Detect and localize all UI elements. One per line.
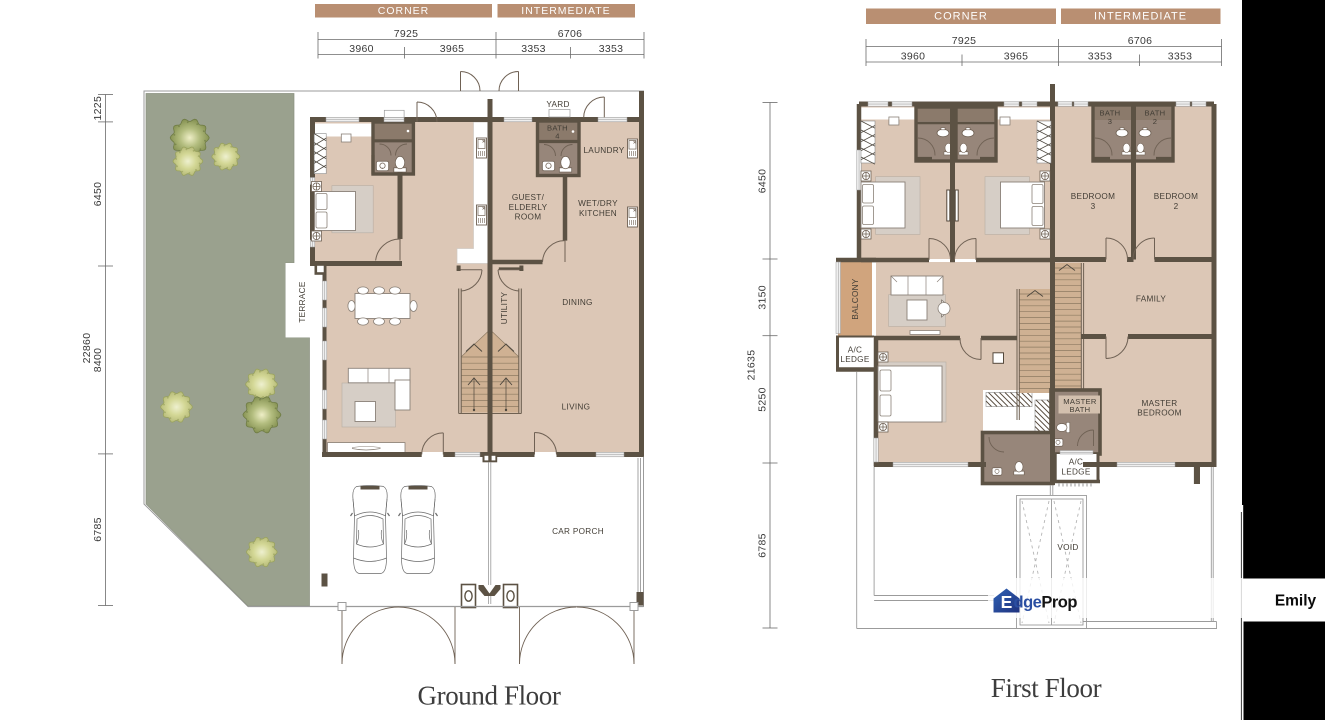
svg-text:dgeProp: dgeProp [1014, 594, 1078, 612]
svg-text:3150: 3150 [757, 285, 769, 310]
svg-text:LEDGE: LEDGE [1061, 468, 1090, 477]
svg-text:MASTER: MASTER [1142, 399, 1178, 408]
svg-text:TERRACE: TERRACE [298, 281, 307, 322]
svg-text:7925: 7925 [394, 28, 419, 40]
svg-text:CORNER: CORNER [934, 11, 988, 23]
svg-text:VOID: VOID [1057, 543, 1078, 552]
svg-text:WET/DRY: WET/DRY [578, 199, 618, 208]
svg-text:LIVING: LIVING [562, 403, 591, 412]
svg-text:3353: 3353 [521, 43, 546, 55]
svg-text:First Floor: First Floor [991, 673, 1102, 703]
svg-text:Ground Floor: Ground Floor [418, 681, 561, 711]
svg-text:YARD: YARD [546, 100, 569, 109]
svg-text:BEDROOM: BEDROOM [1137, 409, 1181, 418]
svg-text:6450: 6450 [92, 182, 104, 207]
svg-text:2: 2 [1174, 202, 1179, 211]
svg-text:3960: 3960 [349, 43, 374, 55]
svg-text:CORNER: CORNER [378, 5, 430, 17]
svg-text:3: 3 [1091, 202, 1096, 211]
svg-text:CAR PORCH: CAR PORCH [552, 527, 604, 536]
svg-text:3353: 3353 [599, 43, 624, 55]
svg-text:3353: 3353 [1168, 51, 1193, 63]
svg-text:BEDROOM: BEDROOM [1154, 192, 1198, 201]
svg-text:E: E [1001, 592, 1013, 612]
svg-text:22860: 22860 [81, 333, 93, 364]
svg-text:ROOM: ROOM [515, 213, 542, 222]
svg-text:3965: 3965 [440, 43, 465, 55]
svg-text:7925: 7925 [952, 35, 977, 47]
svg-text:UTILITY: UTILITY [500, 291, 509, 324]
svg-text:BALCONY: BALCONY [851, 278, 860, 319]
svg-text:KITCHEN: KITCHEN [579, 209, 617, 218]
svg-text:6706: 6706 [558, 28, 583, 40]
svg-text:Emily: Emily [1275, 593, 1317, 610]
svg-text:6785: 6785 [92, 517, 104, 542]
svg-text:21635: 21635 [746, 350, 758, 381]
svg-text:5250: 5250 [757, 387, 769, 412]
svg-text:6785: 6785 [757, 533, 769, 558]
svg-text:3: 3 [1108, 117, 1113, 126]
svg-text:2: 2 [1153, 117, 1158, 126]
svg-text:8400: 8400 [92, 348, 104, 373]
svg-text:3965: 3965 [1004, 51, 1029, 63]
svg-text:ELDERLY: ELDERLY [509, 203, 548, 212]
svg-text:6450: 6450 [757, 169, 769, 194]
svg-text:1225: 1225 [92, 96, 104, 121]
svg-text:3960: 3960 [901, 51, 926, 63]
svg-text:4: 4 [555, 132, 560, 141]
svg-text:INTERMEDIATE: INTERMEDIATE [1094, 11, 1187, 23]
svg-text:3353: 3353 [1088, 51, 1113, 63]
svg-text:GUEST/: GUEST/ [512, 193, 545, 202]
svg-text:A/C: A/C [848, 346, 863, 355]
svg-text:LAUNDRY: LAUNDRY [583, 146, 624, 155]
svg-text:BATH: BATH [1070, 405, 1091, 414]
svg-text:INTERMEDIATE: INTERMEDIATE [521, 5, 610, 17]
svg-text:BEDROOM: BEDROOM [1071, 192, 1115, 201]
svg-text:FAMILY: FAMILY [1136, 295, 1167, 304]
svg-text:DINING: DINING [562, 298, 592, 307]
svg-text:6706: 6706 [1128, 35, 1153, 47]
svg-text:A/C: A/C [1069, 458, 1084, 467]
svg-text:LEDGE: LEDGE [840, 355, 869, 364]
